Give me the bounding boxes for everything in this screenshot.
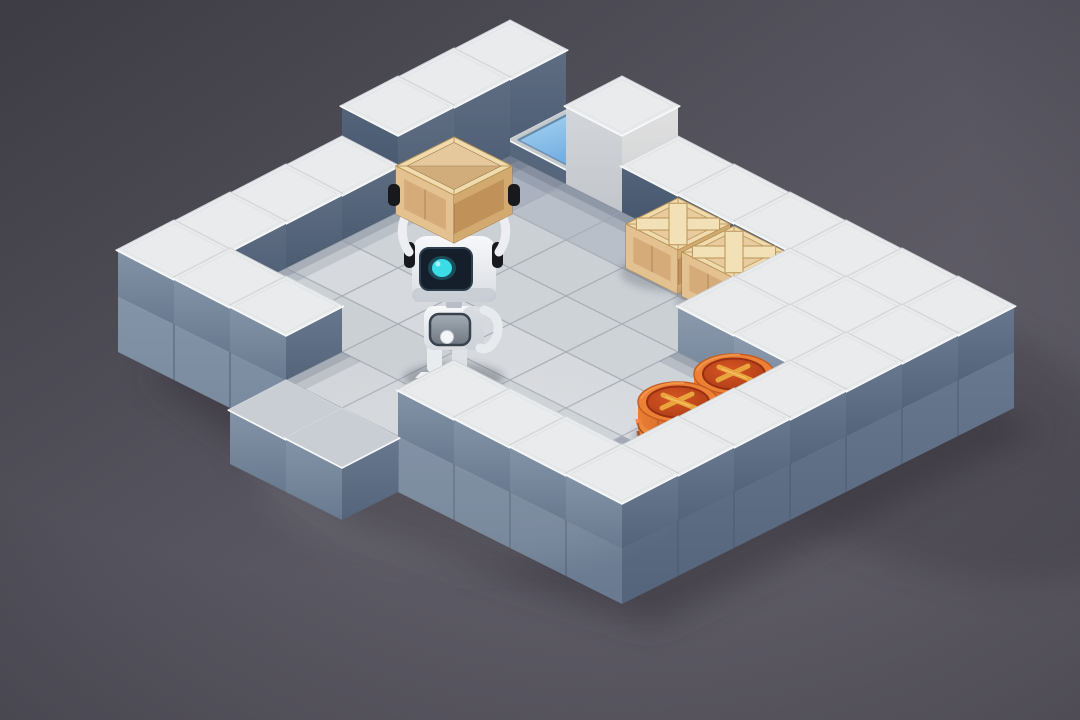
game-viewport [0, 0, 1080, 720]
isometric-scene [0, 0, 1080, 720]
